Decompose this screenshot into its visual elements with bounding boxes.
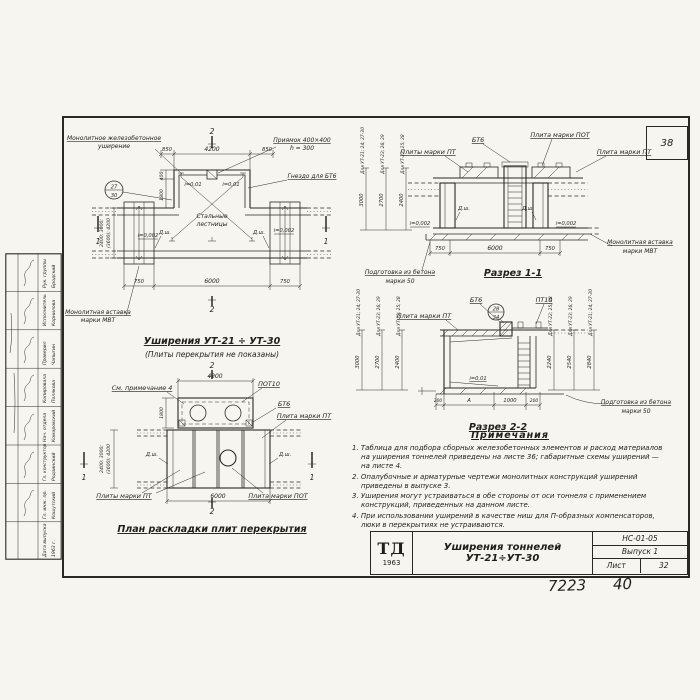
height-col-value: 3000 — [355, 355, 361, 369]
dim-width-options: (3600); 4200 — [106, 218, 112, 248]
dim-value: 6000 — [204, 278, 219, 285]
pot10-slab — [178, 398, 253, 428]
slope-label: i=0,002 — [410, 221, 431, 227]
pt-plate-label: Плита марки ПТ — [397, 312, 452, 320]
stamp-name: Корнилова — [51, 300, 57, 326]
blinding-label: Подготовка из бетона — [365, 269, 436, 276]
blinding-label: Подготовка из бетона — [601, 399, 672, 406]
stamp-role: Гл. конструктор — [42, 443, 48, 481]
pot10-label: ПОТ10 — [258, 380, 280, 388]
roof-plate-left — [460, 167, 498, 178]
central-column-bt6 — [504, 166, 526, 228]
height-col-value: 3000 — [359, 193, 365, 207]
wall-right — [533, 183, 548, 228]
sheet-row: Лист 32 — [593, 559, 687, 573]
height-col-value: 2840 — [587, 355, 593, 369]
deformation-joint-label: Д.ш. — [252, 230, 265, 236]
pot-plate-label: Плита марки ПОТ — [530, 131, 590, 139]
height-col-label: Для УТ-23; 26; 29 — [380, 134, 386, 175]
slope-label: i=0,01 — [469, 376, 486, 382]
slab-field — [167, 430, 270, 488]
dim-value: 750 — [435, 246, 446, 252]
bt6-label: БТ6 — [472, 136, 484, 144]
niche-outline — [174, 170, 250, 208]
stamp-role: Гл. инж. пр. — [42, 490, 48, 519]
stamp-role: Проверил — [42, 341, 48, 365]
blinding-label: марки 50 — [385, 278, 414, 285]
deformation-joint-label: Д.ш. — [457, 206, 470, 212]
height-col-label: Для УТ-23; 26; 29 — [568, 296, 574, 337]
slab-layout-plan-drawing: Д.ш. Д.ш. 1 1 2 2 4200 6000 1800 2400; 3… — [62, 360, 348, 550]
insert-label: марки МВТ — [81, 317, 117, 324]
niche-inner — [179, 175, 245, 208]
height-col-label: Для УТ-23; 26; 29 — [376, 296, 382, 337]
margin-mark — [10, 313, 15, 433]
pit-label: h = 300 — [290, 145, 314, 152]
section-mark-2: 2 — [210, 507, 215, 516]
bt6-label: БТ6 — [470, 296, 482, 304]
plan-subtitle: (Плиты перекрытия не показаны) — [145, 350, 279, 359]
note-item: 4. При использовании уширений в качестве… — [352, 512, 668, 530]
section-mark-1: 1 — [96, 237, 101, 246]
height-col-label: Для УТ-21; 24; 27-30 — [356, 289, 362, 337]
stamp-name: Полякова — [51, 380, 57, 403]
signature-mark — [24, 414, 34, 440]
drawing-sheet: 38 Рук. группы Бродский Исполнитель Корн… — [0, 0, 700, 700]
stamp-name: Чапыгин — [51, 344, 57, 365]
height-col-label: Для УТ-21; 24; 27-30 — [588, 289, 594, 337]
sheet-number: 32 — [641, 559, 688, 573]
plan-title: Уширения УТ-21 ÷ УТ-30 — [144, 336, 281, 347]
pt-plates-label: Плиты марки ПТ — [96, 492, 152, 500]
dim-value: 400 — [159, 172, 165, 181]
ladder-label: лестницы — [196, 221, 228, 228]
document-code: НС-01-05 — [593, 532, 687, 546]
dim-value: 200 — [434, 398, 443, 404]
footer-number-right: 40 — [613, 575, 633, 593]
pt-plates-label: Плиты марки ПТ — [400, 148, 456, 156]
stamp-role: Дата выпуска — [42, 523, 48, 558]
height-col-value: 2540 — [567, 355, 573, 369]
dim-value: А — [466, 398, 471, 404]
drawing-title: Уширения тоннелей УТ-21÷УТ-30 — [413, 532, 592, 574]
dim-value: 6000 — [210, 493, 225, 500]
roof-plate-right — [532, 167, 570, 178]
ladder-label: Стальные — [196, 213, 227, 220]
dim-width-options: (3600); 4200 — [106, 444, 112, 474]
bt6-label: БТ6 — [278, 400, 290, 408]
section-2-2-drawing: Для УТ-21; 24; 27-30 Для УТ-23; 26; 29 Д… — [348, 292, 688, 444]
stamp-name: Родзинский — [51, 453, 57, 481]
height-col-value: 2400 — [399, 193, 405, 207]
insert-label: Монолитная вставка — [607, 239, 673, 246]
signature-mark — [24, 337, 34, 363]
height-col-value: 2240 — [547, 355, 553, 369]
logo-cell: ТД 1963 — [371, 532, 413, 574]
note-item: 3. Уширения могут устраиваться в обе сто… — [352, 492, 668, 510]
pt10-label: ПТ10 — [536, 296, 553, 304]
title-block-codes: НС-01-05 Выпуск 1 Лист 32 — [592, 532, 687, 574]
section-mark-2: 2 — [210, 127, 215, 136]
detail-sheet: 30 — [111, 193, 118, 199]
issue-label: Выпуск 1 — [593, 546, 687, 560]
monolithic-widening-label: Монолитное железобетонное — [67, 135, 161, 142]
pit-label: Приямок 400×400 — [273, 137, 331, 144]
section-mark-1: 1 — [82, 473, 87, 482]
section-mark-2: 2 — [210, 305, 215, 314]
insert-label: Монолитная вставка — [65, 309, 131, 316]
notes-block: Примечания 1. Таблица для подбора сборны… — [352, 430, 668, 531]
insert-label: марки МВТ — [623, 248, 659, 255]
pot-plate-label: Плита марки ПОТ — [248, 492, 308, 500]
stamp-name: Кошутский — [51, 492, 57, 519]
stamp-name: 1963 г. — [51, 540, 57, 557]
height-col-label: Для УТ-21; 24; 27-30 — [360, 127, 366, 175]
slope-label: i=0,01 — [222, 182, 239, 188]
signature-mark — [24, 452, 34, 478]
stamp-name: Бродский — [51, 265, 57, 288]
section-mark-1: 1 — [324, 237, 329, 246]
dim-value: 200 — [530, 398, 539, 404]
sheet-label: Лист — [593, 559, 641, 573]
socket-label: Гнездо для БТ6 — [288, 173, 337, 180]
signature-mark — [24, 260, 34, 286]
hatch-opening — [190, 405, 206, 421]
stamp-name: Комаровский — [51, 410, 57, 442]
slope-label: i=0,002 — [138, 233, 159, 239]
deformation-joint-label: Д.ш. — [145, 452, 158, 458]
dim-width-options: 2400; 3000; — [99, 445, 105, 473]
hatch-opening — [220, 450, 236, 466]
section-1-1-drawing: Для УТ-21; 24; 27-30 Для УТ-23; 26; 29 Д… — [348, 122, 688, 294]
logo-text: ТД — [377, 539, 405, 558]
handwritten-footer: 7223 40 — [548, 575, 633, 595]
signature-mark — [24, 375, 34, 401]
section-mark-2: 2 — [210, 361, 215, 370]
slope-label: i=0,002 — [556, 221, 577, 227]
dim-value: 850 — [262, 147, 273, 153]
dim-value: 1800 — [159, 407, 165, 419]
dim-value: 6000 — [487, 245, 502, 252]
monolithic-widening-label: уширение — [97, 143, 130, 150]
deformation-joint-label: Д.ш. — [158, 230, 171, 236]
slope-label: i=0,002 — [274, 228, 295, 234]
height-col-value: 2700 — [375, 355, 381, 369]
pt-plate-label: Плита марки ПТ — [597, 148, 652, 156]
dim-value: 750 — [280, 279, 291, 285]
plan-widening-drawing: Стальные лестницы i=0,01 i=0,01 i=0,002 … — [62, 118, 348, 366]
signature-mark — [24, 490, 34, 516]
section-mark-1: 1 — [310, 473, 315, 482]
note-item: 2. Опалубочные и арматурные чертежи моно… — [352, 473, 668, 491]
pt-plate-label: Плита марки ПТ — [277, 412, 332, 420]
stamp-column: Рук. группы Бродский Исполнитель Корнило… — [5, 253, 62, 560]
height-col-value: 2700 — [379, 193, 385, 207]
detail-sheet: 34 — [493, 315, 500, 321]
stamp-role: Нач. отдела — [42, 413, 48, 442]
see-note-label: См. примечание 4 — [112, 384, 173, 392]
stamp-role: Рук. группы — [42, 259, 48, 288]
note-item: 1. Таблица для подбора сборных железобет… — [352, 444, 668, 472]
dim-value: 4200 — [207, 373, 222, 380]
signature-mark — [24, 298, 34, 324]
slope-label: i=0,01 — [184, 182, 201, 188]
notes-title: Примечания — [352, 430, 668, 441]
hatch-opening — [225, 405, 241, 421]
detail-number: 27 — [111, 185, 118, 191]
blinding-label: марки 50 — [621, 408, 650, 415]
title-block: ТД 1963 Уширения тоннелей УТ-21÷УТ-30 НС… — [370, 531, 688, 575]
dim-value: 750 — [545, 246, 556, 252]
deformation-joint-label: Д.ш. — [278, 452, 291, 458]
footer-number-left: 7223 — [548, 576, 587, 595]
plan-title: План раскладки плит перекрытия — [117, 524, 306, 535]
height-col-value: 2400 — [395, 355, 401, 369]
dim-value: 1800 — [159, 189, 165, 201]
deformation-joint-label: Д.ш. — [521, 206, 534, 212]
wall-left — [440, 183, 455, 228]
logo-year: 1963 — [383, 559, 401, 567]
detail-number: 28 — [493, 307, 500, 313]
stamp-role: Исполнитель — [42, 294, 48, 326]
dim-value: 850 — [162, 147, 173, 153]
stamp-role: Копировала — [42, 374, 48, 403]
section-title: Разрез 1-1 — [484, 268, 542, 279]
dim-value: 1000 — [503, 398, 517, 404]
